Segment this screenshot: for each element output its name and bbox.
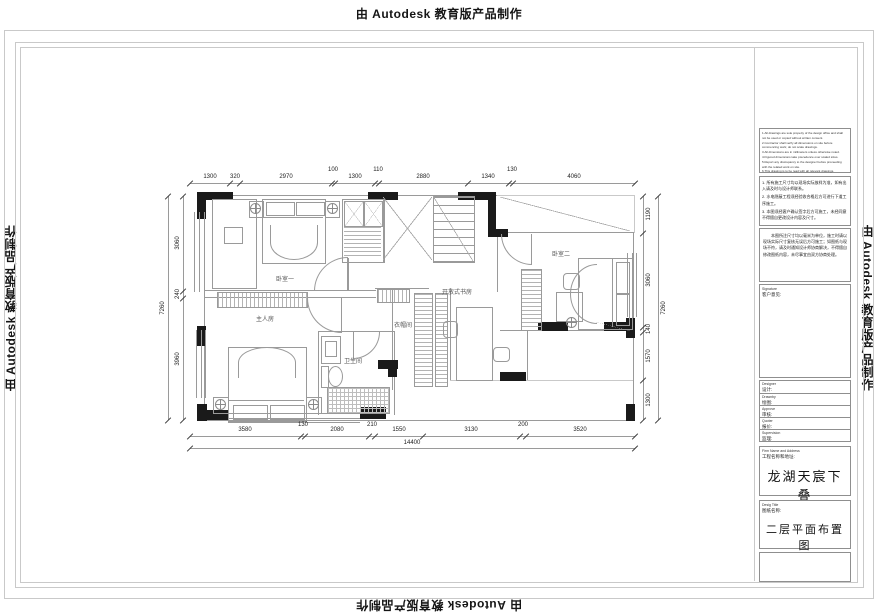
stair-void — [383, 197, 432, 260]
chair — [493, 347, 510, 362]
bedroom2-wardrobe — [521, 269, 542, 331]
window-master-left — [196, 330, 206, 398]
wall-bedroom2-left — [497, 232, 498, 292]
watermark-top: 由 Autodesk 教育版产品制作 — [356, 5, 522, 22]
spec-paragraph: 本图所注尺寸均以毫米为单位，施工时请以现场实际尺寸复核无误后方可施工；如图纸与现… — [763, 233, 847, 258]
study-desk — [456, 307, 493, 381]
wall-bedroom2-top — [497, 232, 634, 233]
lamp-icon — [250, 203, 261, 214]
pillow — [266, 202, 295, 216]
staircase-break-line — [433, 196, 473, 261]
door-leaf — [531, 234, 532, 264]
pillow — [233, 405, 268, 420]
wardrobe-hatch — [344, 227, 381, 259]
titleblock-signature: Signature 客户意见: — [759, 284, 851, 378]
dim-line-top — [190, 183, 635, 184]
window-bath-bottom — [305, 413, 360, 423]
cad-drawing-page: 由 Autodesk 教育版产品制作 由 Autodesk 教育版产品制作 由 … — [0, 0, 878, 616]
field-quoter: Quoter 报价: — [760, 417, 850, 429]
room-label-bathroom: 卫生间 — [344, 356, 362, 365]
bed-blanket-arc — [270, 225, 318, 260]
field-designer: Designer 设计: — [760, 381, 850, 393]
wall-study-right — [527, 331, 528, 381]
dim-value: 110 — [373, 167, 383, 173]
titleblock-firm: Firm Name and Address 工程名称和地址: 龙湖天宸下叠 — [759, 446, 851, 496]
bed-line — [263, 217, 323, 218]
dim-value-total: 14400 — [404, 440, 421, 446]
bed-line — [229, 400, 304, 401]
bedroom1-cabinet — [224, 227, 243, 244]
dim-value: 100 — [328, 167, 338, 173]
dim-value: 1570 — [646, 349, 652, 362]
bathroom-sink-basin — [325, 341, 337, 357]
dim-value: 320 — [230, 174, 240, 180]
dim-value: 130 — [507, 167, 517, 173]
dim-value: 210 — [367, 422, 377, 428]
dim-line-left-total — [168, 196, 169, 420]
dim-value: 1340 — [481, 174, 494, 180]
project-name: 龙湖天宸下叠 — [762, 466, 848, 504]
titleblock-spec-cn: 本图所注尺寸均以毫米为单位，施工时请以现场实际尺寸复核无误后方可施工；如图纸与现… — [759, 228, 851, 282]
door-leaf — [353, 332, 354, 358]
wall-segment — [626, 404, 635, 421]
room-label-bedroom2: 卧室二 — [552, 249, 570, 258]
dim-value: 3060 — [646, 273, 652, 286]
titleblock-desig: Desig Title 图纸名称: 二层平面布置图 — [759, 500, 851, 549]
dim-value: 3060 — [175, 236, 181, 249]
note-line: 5.Report any discrepancy to the designer… — [762, 160, 848, 165]
dim-value: 3580 — [238, 427, 251, 433]
watermark-bottom: 由 Autodesk 教育版产品制作 — [356, 597, 522, 614]
pillow — [616, 262, 630, 294]
titleblock-table: Project No. Sheet No. Date Scale 1:75 — [759, 552, 851, 582]
dim-value: 3960 — [175, 352, 181, 365]
drawing-title: 二层平面布置图 — [762, 521, 848, 553]
cloak-wardrobe-top — [377, 289, 410, 303]
field-label-cn: 监理: — [762, 436, 848, 442]
firm-label-cn: 工程名称和地址: — [762, 454, 848, 460]
field-drawnby: Drawnby 绘图: — [760, 393, 850, 405]
note-line: 6.This drawing is to be read with all re… — [762, 169, 848, 174]
window-sill-hatch — [596, 322, 630, 331]
lamp-icon — [215, 399, 226, 410]
dim-value: 1300 — [646, 393, 652, 406]
dim-value: 3130 — [464, 427, 477, 433]
dim-value: 130 — [298, 422, 308, 428]
dim-value: 240 — [175, 289, 181, 299]
bed-line — [612, 259, 613, 327]
dim-value: 4060 — [567, 174, 580, 180]
dim-line-right — [643, 196, 644, 420]
dim-line-right-total — [658, 196, 659, 420]
wall-segment — [388, 360, 397, 377]
wall-segment — [500, 372, 526, 381]
lamp-icon — [327, 203, 338, 214]
room-label-master: 主人房 — [256, 314, 274, 323]
dim-value-total: 7260 — [661, 301, 667, 314]
signature-label-cn: 客户意见: — [762, 292, 848, 298]
note-line: 3. 本图须经客户确认签字后方可施工，未经同意不得擅自更改设计内容及尺寸。 — [762, 209, 848, 221]
room-label-cloakroom: 衣帽间 — [394, 320, 412, 329]
dim-value: 1190 — [646, 208, 652, 221]
toilet-bowl — [328, 366, 343, 387]
wall-segment — [538, 322, 568, 331]
dim-value: 2880 — [416, 174, 429, 180]
dim-value: 200 — [518, 422, 528, 428]
dim-value: 2080 — [330, 427, 343, 433]
chair — [443, 321, 458, 338]
titleblock-notes-cn: 1. 所有施工尺寸均以现场实际放样为准，如有出入请及时与设计师联系。 2. 水电… — [759, 176, 851, 226]
dim-value-total: 7260 — [160, 301, 166, 314]
pillow — [270, 405, 305, 420]
lamp-icon — [566, 317, 577, 328]
void-roof-hatch — [500, 197, 630, 231]
cloak-wardrobe — [435, 293, 448, 387]
dim-line-bottom-total — [190, 448, 635, 449]
master-closet-hatch — [217, 292, 308, 308]
titleblock-notes-en: 1.All drawings are sole property of the … — [759, 128, 851, 173]
wardrobe-box — [344, 201, 364, 227]
door-leaf — [347, 258, 348, 291]
dim-value: 3520 — [573, 427, 586, 433]
field-supervision: Supervision 监理: — [760, 429, 850, 441]
room-label-bedroom1: 卧室一 — [276, 274, 294, 283]
door-leaf — [341, 298, 342, 332]
bed-blanket-arc — [238, 347, 296, 378]
dim-value: 1550 — [392, 427, 405, 433]
pillow — [296, 202, 325, 216]
titleblock-fields: Designer 设计: Drawnby 绘图: Approve 审核: Quo… — [759, 380, 851, 442]
dim-value: 1300 — [203, 174, 216, 180]
wall-bedroom1-bottom — [204, 290, 376, 291]
cloak-wardrobe — [414, 293, 433, 387]
room-label-study: 开放式书房 — [442, 287, 472, 296]
wardrobe-box — [364, 201, 383, 227]
terrace-line — [527, 380, 633, 381]
wall-top-right-void — [497, 195, 635, 196]
dim-line-bottom — [190, 436, 635, 437]
note-line: 2. 水电隐蔽工程须经验收合格后方可进行下道工序施工。 — [762, 194, 848, 206]
dim-value: 2970 — [279, 174, 292, 180]
field-approve: Approve 审核: — [760, 405, 850, 417]
desig-label-cn: 图纸名称: — [762, 508, 848, 514]
note-line: 1. 所有施工尺寸均以现场实际放样为准，如有出入请及时与设计师联系。 — [762, 180, 848, 192]
shower-floor — [327, 387, 390, 414]
dim-value: 1300 — [348, 174, 361, 180]
dim-line-left — [183, 196, 184, 420]
wall-void-right — [634, 195, 635, 233]
window-bay-left — [194, 212, 205, 292]
field-label-cn: 设计: — [762, 387, 848, 393]
dim-value: 140 — [646, 324, 652, 334]
lamp-icon — [308, 399, 319, 410]
titleblock-divider — [754, 47, 755, 581]
